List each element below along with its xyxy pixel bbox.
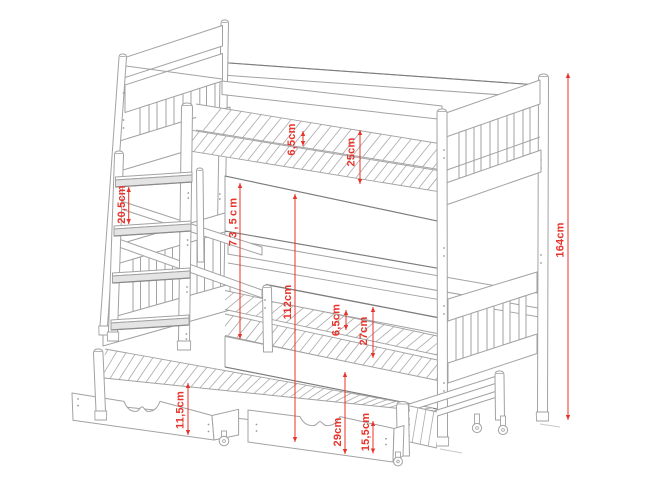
svg-text:20,5cm: 20,5cm (116, 185, 128, 224)
svg-text:6,5cm: 6,5cm (286, 123, 298, 155)
svg-text:27cm: 27cm (358, 317, 370, 346)
svg-text:11,5cm: 11,5cm (175, 391, 187, 429)
svg-text:25cm: 25cm (346, 138, 358, 167)
svg-text:15,5cm: 15,5cm (360, 413, 372, 452)
svg-text:112cm: 112cm (282, 285, 294, 320)
svg-text:73,5cm: 73,5cm (228, 196, 240, 247)
svg-text:164cm: 164cm (555, 222, 567, 257)
svg-text:6,5cm: 6,5cm (331, 304, 343, 336)
svg-text:29cm: 29cm (332, 418, 344, 447)
